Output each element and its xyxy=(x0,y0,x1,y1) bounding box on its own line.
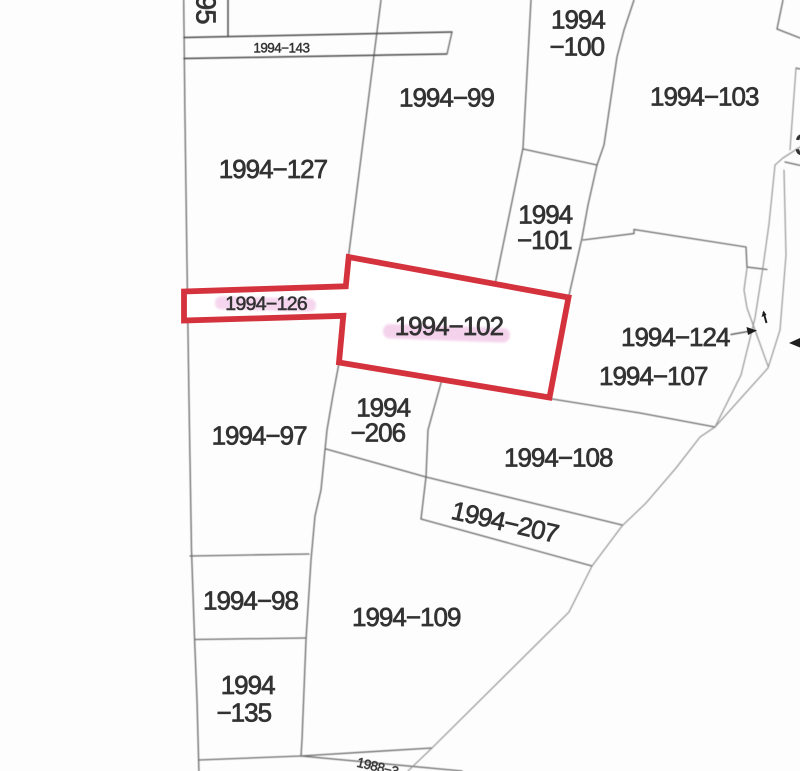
svg-text:1994−97: 1994−97 xyxy=(212,421,307,451)
svg-text:1994−108: 1994−108 xyxy=(504,443,613,473)
svg-text:−135: −135 xyxy=(217,698,272,728)
svg-text:1994−126: 1994−126 xyxy=(225,293,307,315)
svg-text:1994−109: 1994−109 xyxy=(352,602,461,632)
svg-text:3: 3 xyxy=(795,129,800,162)
svg-text:1994: 1994 xyxy=(221,670,275,700)
svg-text:−101: −101 xyxy=(517,225,572,255)
svg-text:1994: 1994 xyxy=(551,5,605,35)
svg-text:1994−95: 1994−95 xyxy=(190,0,221,24)
svg-text:1994−99: 1994−99 xyxy=(399,83,494,113)
svg-text:1994−98: 1994−98 xyxy=(203,586,298,616)
svg-text:−206: −206 xyxy=(351,418,406,448)
svg-text:1994−102: 1994−102 xyxy=(395,311,504,341)
svg-text:1994−103: 1994−103 xyxy=(650,82,759,112)
svg-text:−100: −100 xyxy=(550,32,605,62)
svg-text:1994−124: 1994−124 xyxy=(621,322,730,352)
svg-text:1994−143: 1994−143 xyxy=(253,41,309,56)
svg-text:1994−127: 1994−127 xyxy=(219,154,328,184)
svg-text:1994−107: 1994−107 xyxy=(599,361,708,391)
